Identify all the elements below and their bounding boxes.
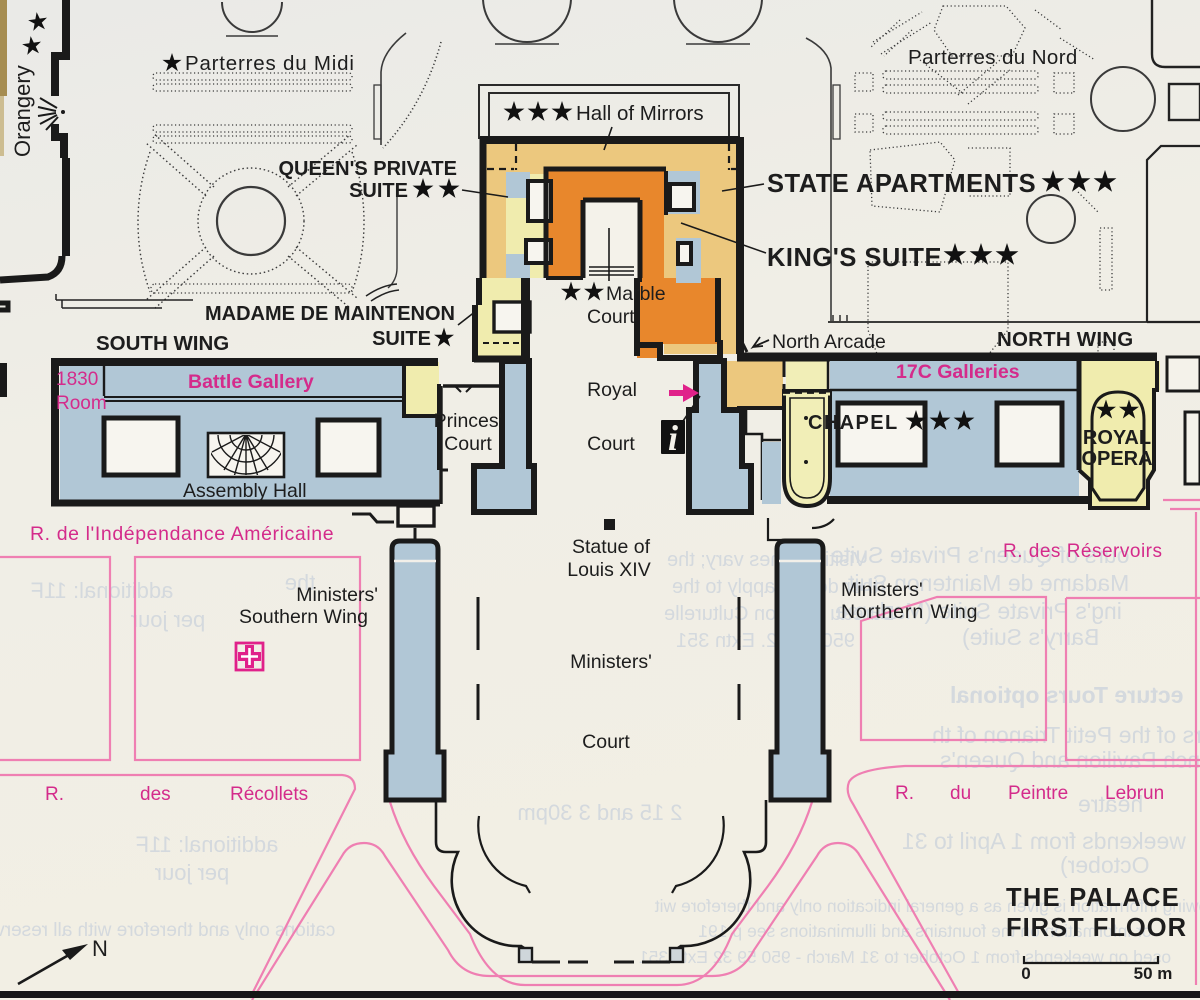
svg-text:0: 0 <box>1021 964 1030 983</box>
svg-text:QUEEN'S PRIVATE: QUEEN'S PRIVATE <box>279 158 458 180</box>
svg-text:Hall of Mirrors: Hall of Mirrors <box>576 102 704 125</box>
svg-text:Ministers': Ministers' <box>296 584 378 606</box>
svg-text:ROYAL: ROYAL <box>1083 427 1151 449</box>
svg-text:Parterres du Nord: Parterres du Nord <box>908 46 1078 69</box>
svg-text:Marble: Marble <box>606 283 666 305</box>
svg-text:Lebrun: Lebrun <box>1105 783 1164 804</box>
svg-text:MADAME DE MAINTENON: MADAME DE MAINTENON <box>205 303 455 325</box>
svg-text:R. des Réservoirs: R. des Réservoirs <box>1003 541 1163 562</box>
svg-text:Louis XIV: Louis XIV <box>567 559 650 581</box>
svg-text:Visiting times vary; the: Visiting times vary; the <box>667 549 867 571</box>
svg-text:Court: Court <box>444 433 492 455</box>
svg-text:Royal: Royal <box>587 379 637 401</box>
svg-text:950 59 32. Extn 351: 950 59 32. Extn 351 <box>676 630 855 652</box>
svg-text:50 m: 50 m <box>1134 964 1173 983</box>
svg-text:OPERA: OPERA <box>1081 448 1152 470</box>
svg-text:R. de l'Indépendance Américain: R. de l'Indépendance Américaine <box>30 523 334 545</box>
svg-text:Statue of: Statue of <box>572 536 651 558</box>
svg-text:weekends from 1 April to 31: weekends from 1 April to 31 <box>902 828 1187 854</box>
svg-text:SUITE: SUITE <box>349 180 408 202</box>
svg-text:CHAPEL: CHAPEL <box>808 412 899 434</box>
svg-text:additional: 11F: additional: 11F <box>136 832 279 857</box>
svg-text:i: i <box>668 418 678 458</box>
svg-text:N: N <box>92 936 108 961</box>
svg-text:Court: Court <box>587 306 635 328</box>
svg-text:Assembly Hall: Assembly Hall <box>183 480 307 502</box>
svg-text:Parterres du Midi: Parterres du Midi <box>185 52 355 75</box>
svg-text:FIRST FLOOR: FIRST FLOOR <box>1006 914 1187 942</box>
svg-text:per jour: per jour <box>155 860 230 885</box>
svg-text:Ministers': Ministers' <box>570 651 652 673</box>
svg-text:SOUTH WING: SOUTH WING <box>96 332 229 355</box>
svg-text:North Arcade: North Arcade <box>772 331 886 353</box>
svg-text:October): October) <box>1060 852 1149 878</box>
svg-text:STATE APARTMENTS: STATE APARTMENTS <box>767 170 1036 198</box>
svg-text:17C Galleries: 17C Galleries <box>896 361 1020 383</box>
svg-text:additional: 11F: additional: 11F <box>31 578 174 603</box>
svg-text:Court: Court <box>587 433 635 455</box>
svg-text:Peintre: Peintre <box>1008 783 1068 804</box>
svg-text:Ministers': Ministers' <box>841 579 923 601</box>
svg-text:1830: 1830 <box>56 369 98 390</box>
svg-text:Princes': Princes' <box>434 410 503 432</box>
svg-text:Southern Wing: Southern Wing <box>239 606 368 628</box>
svg-text:Room: Room <box>56 393 107 414</box>
svg-text:du: du <box>950 783 971 804</box>
svg-text:Northern Wing: Northern Wing <box>841 601 978 623</box>
svg-text:Battle Gallery: Battle Gallery <box>188 371 314 393</box>
svg-text:NORTH WING: NORTH WING <box>997 328 1133 351</box>
svg-text:Court: Court <box>582 731 630 753</box>
svg-text:KING'S SUITE: KING'S SUITE <box>767 244 942 272</box>
svg-text:R.: R. <box>895 783 914 804</box>
svg-text:Orangery: Orangery <box>10 65 35 157</box>
svg-text:des: des <box>140 784 171 805</box>
svg-text:R.: R. <box>45 784 64 805</box>
svg-text:THE PALACE: THE PALACE <box>1006 884 1180 912</box>
svg-text:2 15 and 3 30pm: 2 15 and 3 30pm <box>517 800 682 825</box>
svg-text:per jour: per jour <box>131 607 206 632</box>
svg-text:SUITE: SUITE <box>372 328 431 350</box>
svg-text:Récollets: Récollets <box>230 784 308 805</box>
svg-text:Barry's Suite): Barry's Suite) <box>962 624 1099 650</box>
